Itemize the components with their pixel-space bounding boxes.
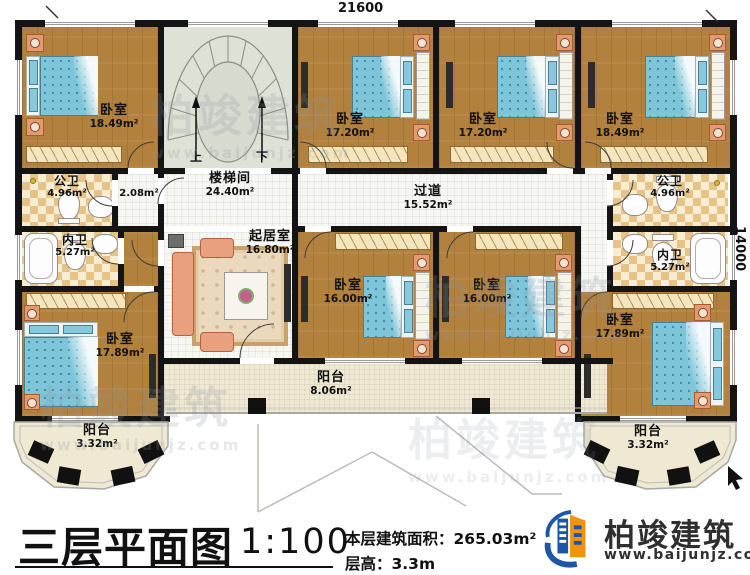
roof-outline: [258, 416, 562, 512]
room-label-landing-area: 2.08m²: [116, 188, 162, 199]
room-label-public-bath-right: 公卫 4.96m²: [630, 175, 710, 200]
room-label-bedroom-top-mid-left: 卧室 17.20m²: [310, 113, 390, 139]
room-label-bedroom-mid-right: 卧室 16.00m²: [447, 279, 527, 305]
dimension-right: 14000: [732, 226, 747, 271]
brand-website: www.baijunjz.com: [604, 547, 750, 563]
room-label-ensuite-bath-left: 内卫 5.27m²: [35, 234, 115, 259]
floorplan-page: 卧室 18.49m² 楼梯间 24.40m² 上 下 卧室 17.20m² 卧室…: [0, 0, 750, 575]
room-label-bedroom-bottom-right: 卧室 17.89m²: [580, 314, 660, 340]
room-label-balcony-left: 阳台 3.32m²: [57, 424, 137, 450]
room-label-hallway: 过道 15.52m²: [388, 185, 468, 211]
room-label-ensuite-bath-right: 内卫 5.27m²: [630, 249, 710, 274]
room-label-bedroom-mid-left: 卧室 16.00m²: [308, 279, 388, 305]
title-underline: [15, 566, 333, 568]
balcony-center-rail: [166, 398, 607, 414]
cursor-icon: [728, 466, 743, 490]
room-label-bedroom-bottom-left: 卧室 17.89m²: [80, 333, 160, 359]
floor-height-text: 层高：3.3m: [345, 552, 435, 574]
floor-area-text: 本层建筑面积：265.03m²: [345, 527, 536, 549]
stairs-up-label: 上: [190, 148, 202, 165]
room-label-living-room: 起居室 16.80m²: [230, 230, 310, 256]
room-label-bedroom-top-right: 卧室 18.49m²: [580, 113, 660, 139]
room-label-bedroom-top-mid-right: 卧室 17.20m²: [443, 113, 523, 139]
stairs-down-label: 下: [256, 148, 268, 165]
room-label-stairwell: 楼梯间 24.40m²: [190, 172, 270, 198]
brand-logo-icon: [542, 505, 600, 569]
plan-scale: 1:100: [240, 522, 351, 562]
room-label-bedroom-top-left: 卧室 18.49m²: [74, 104, 154, 130]
staircase: [168, 36, 288, 162]
door-arcs: [86, 142, 633, 358]
room-label-balcony-right: 阳台 3.32m²: [608, 425, 688, 451]
room-label-public-bath-left: 公卫 4.96m²: [27, 175, 107, 200]
dimension-top: 21600: [338, 1, 383, 16]
room-label-balcony-center: 阳台 8.06m²: [291, 371, 371, 397]
